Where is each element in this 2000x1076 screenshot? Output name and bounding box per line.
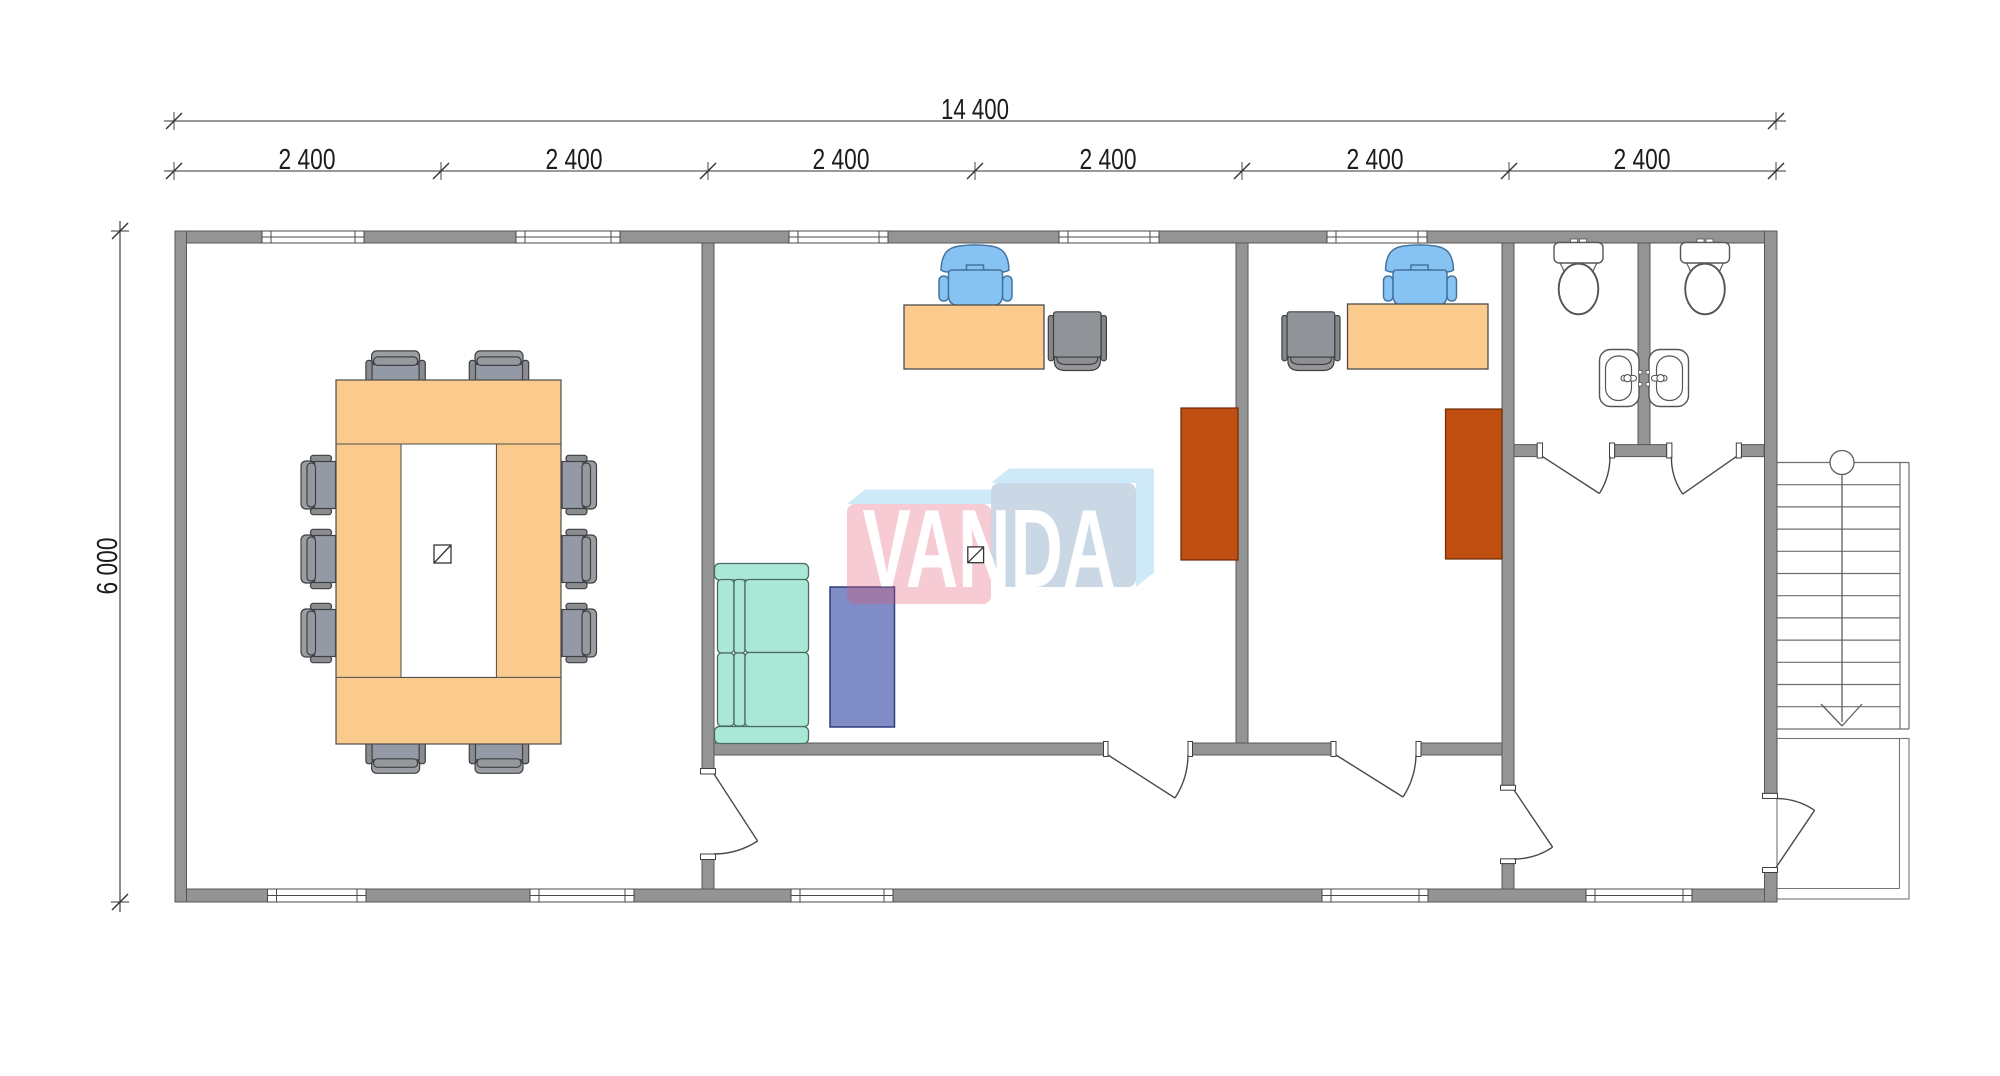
svg-text:2 400: 2 400 xyxy=(813,144,870,176)
svg-text:2 400: 2 400 xyxy=(1347,144,1404,176)
svg-text:2 400: 2 400 xyxy=(1614,144,1671,176)
svg-text:14 400: 14 400 xyxy=(941,94,1009,126)
svg-text:2 400: 2 400 xyxy=(279,144,336,176)
svg-text:VANDA: VANDA xyxy=(863,487,1116,611)
svg-text:2 400: 2 400 xyxy=(546,144,603,176)
svg-text:6 000: 6 000 xyxy=(92,538,124,595)
svg-text:2 400: 2 400 xyxy=(1080,144,1137,176)
